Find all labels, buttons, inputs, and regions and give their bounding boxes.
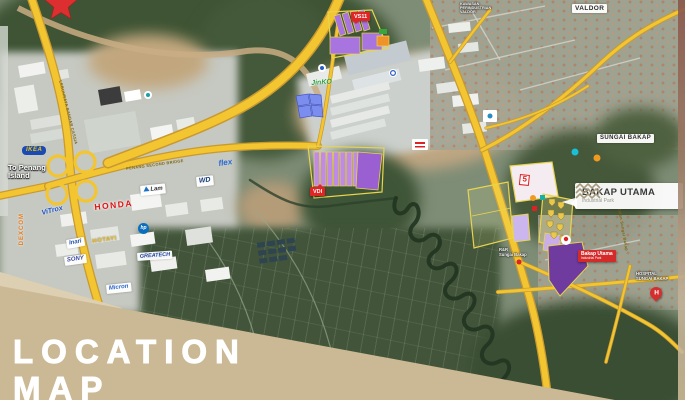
label-to-penang-island: To Penang Island [8,164,46,181]
road-lebuhraya-bandar-cassia: LEBUHRAYA BANDAR CASSIA [58,80,78,145]
page-title: LOCATION MAP [13,334,247,400]
logo-honda: HONDA [94,199,133,212]
label-hospital-sungai-bakap: HOSPITAL SUNGAI BAKAP [636,272,668,281]
logo-lam: Lam [140,183,166,195]
logo-ikea: IKEA [22,146,46,155]
bakap-utama-red-label: Bakap Utama Industrial Park [578,250,616,262]
logo-vitrox: ViTrox [41,205,64,218]
logo-wd: WD [196,175,214,186]
logo-flex: flex [218,158,233,169]
area-kawasan-perindustrian-valdor: KAWASAN PERINDUSTRIAN VALDOR [460,2,491,15]
logo-dexcom: DEXCOM [19,213,26,245]
logo-hp: hp [138,223,149,234]
town-sungai-bakap: SUNGAI BAKAP [597,134,654,143]
logo-greatech: GREATECH [137,251,173,262]
title-line-1: LOCATION [13,334,247,371]
poi-flag-vdi: VDI [310,187,325,196]
bakap-utama-logo [575,183,601,201]
logo-micron: Micron [106,282,131,293]
logo-hotayi: HOTAYI [92,236,117,246]
label-rnr-sungai-bakap: R&R Sungai Bakap [499,248,527,257]
bakap-utama-label: BAKAP UTAMA Industrial Park [575,183,683,209]
logo-five: 5 [519,174,531,186]
poi-flag-vs11: VS11 [351,12,370,21]
bakap-red-subtitle: Industrial Park [581,257,613,261]
logo-sony: SONY [64,254,87,266]
road-penang-second-bridge: PENANG SECOND BRIDGE [126,159,184,171]
road-jalan-sungai-bakap: Jalan Sungai Bakap [617,208,629,251]
logo-inari: Inari [66,237,85,249]
hospital-pin-letter: H [654,290,659,297]
town-valdor: VALDOR [572,4,607,13]
logo-jinko: JinKO [311,79,332,88]
right-edge-strip [678,0,685,400]
location-map: VS11VDIVALDORKAWASAN PERINDUSTRIAN VALDO… [0,0,685,400]
title-line-2: MAP [13,371,247,400]
